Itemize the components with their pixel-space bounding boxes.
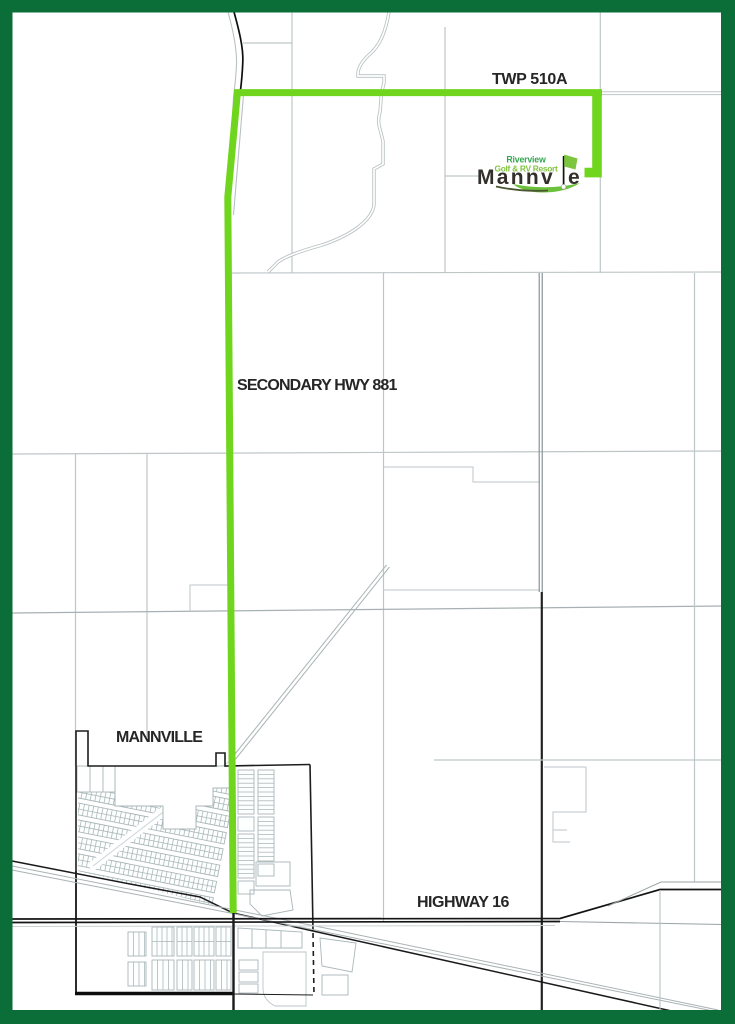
svg-text:MANNVILLE: MANNVILLE [116,729,203,746]
svg-text:SECONDARY HWY 881: SECONDARY HWY 881 [237,377,397,394]
svg-text:HIGHWAY 16: HIGHWAY 16 [417,894,510,911]
svg-text:TWP 510A: TWP 510A [492,71,568,88]
